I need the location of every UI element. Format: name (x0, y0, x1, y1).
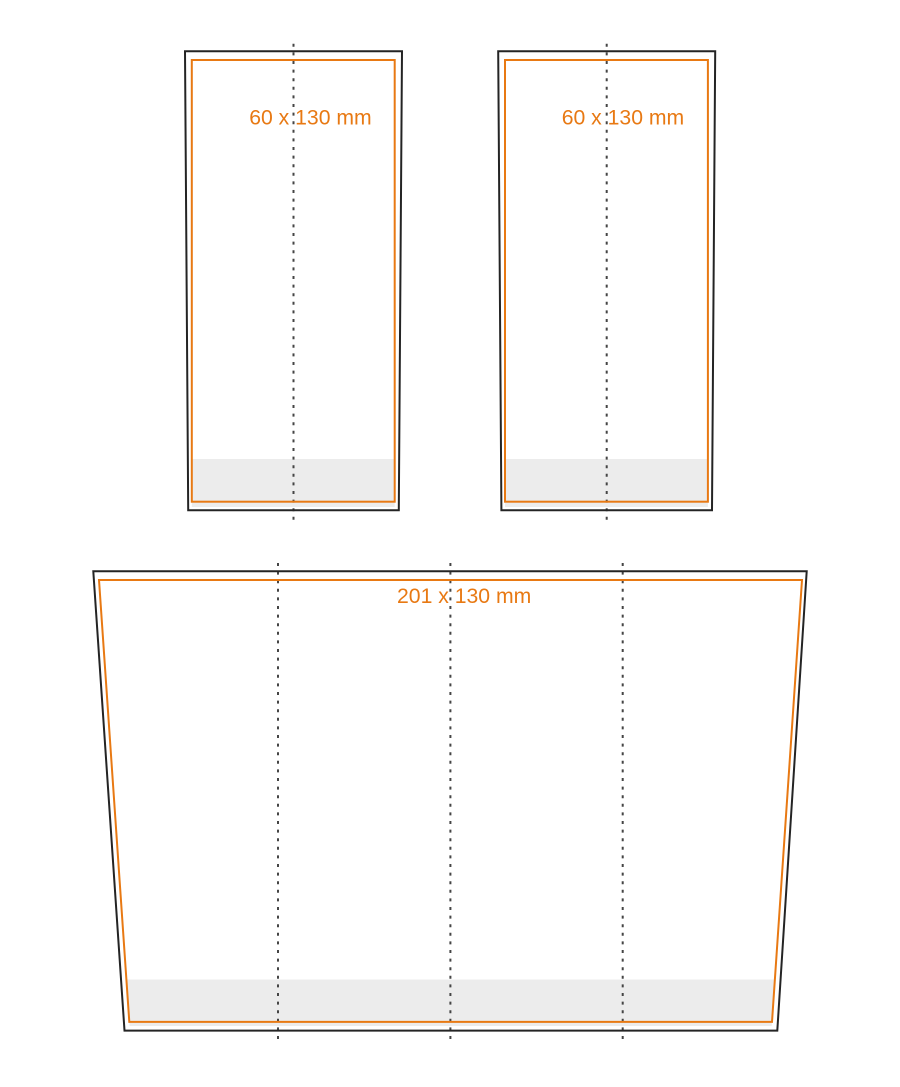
svg-text:201 x 130 mm: 201 x 130 mm (397, 585, 531, 608)
svg-text:60 x 130 mm: 60 x 130 mm (562, 107, 684, 130)
svg-text:60 x 130 mm: 60 x 130 mm (249, 107, 371, 130)
